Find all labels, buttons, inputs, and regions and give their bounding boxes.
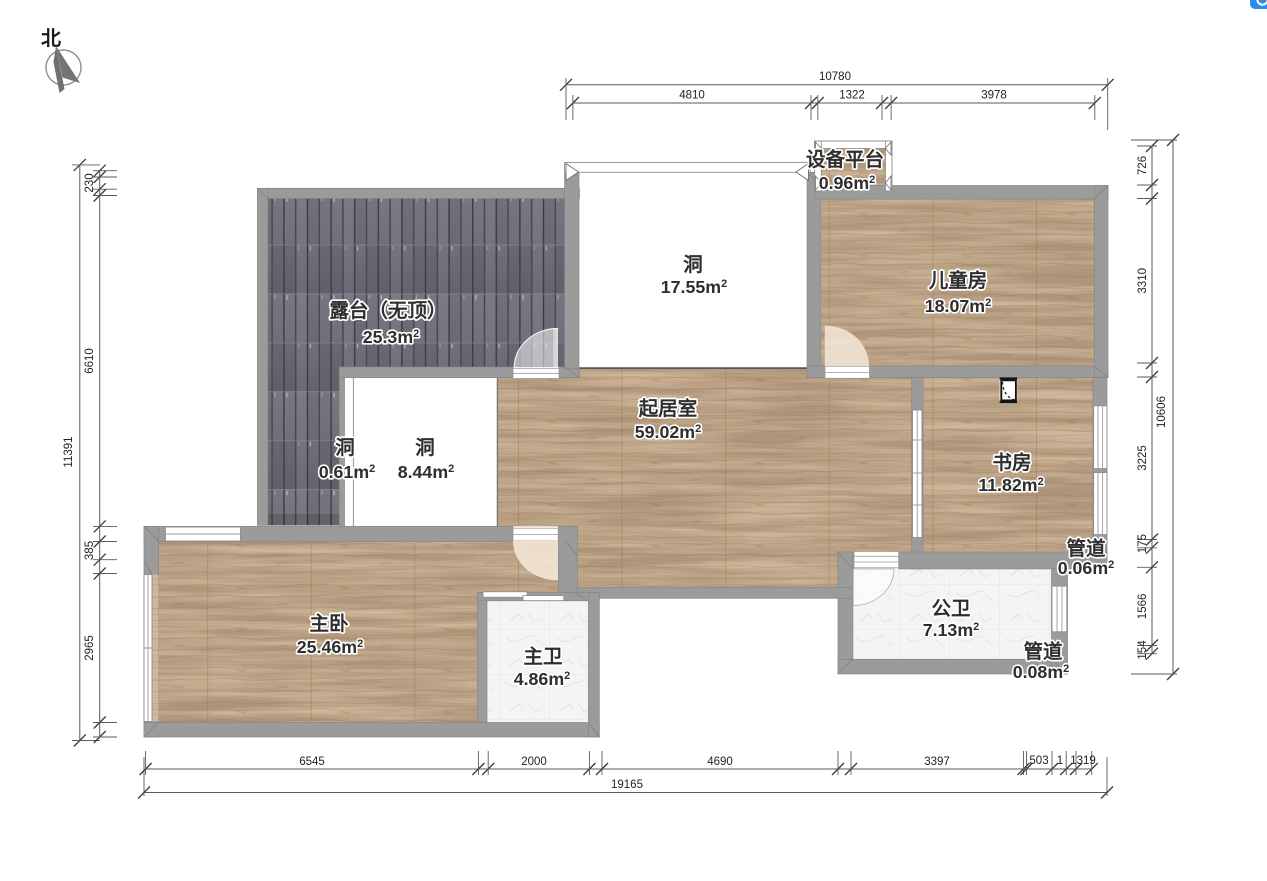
svg-text:1322: 1322 — [839, 90, 865, 102]
svg-text:3225: 3225 — [1137, 445, 1149, 471]
svg-text:11.82m2: 11.82m2 — [978, 475, 1043, 495]
svg-text:59.02m2: 59.02m2 — [635, 422, 701, 442]
svg-text:1: 1 — [1057, 755, 1063, 767]
svg-text:洞: 洞 — [683, 254, 703, 276]
svg-text:154: 154 — [1137, 640, 1149, 660]
svg-text:洞: 洞 — [415, 437, 435, 459]
svg-text:0.08m2: 0.08m2 — [1013, 662, 1070, 682]
svg-text:管道: 管道 — [1066, 537, 1106, 560]
svg-text:洞: 洞 — [335, 437, 355, 459]
svg-text:11391: 11391 — [63, 436, 75, 467]
svg-text:1566: 1566 — [1137, 594, 1149, 620]
svg-text:385: 385 — [84, 541, 96, 560]
svg-text:18.07m2: 18.07m2 — [925, 296, 991, 316]
svg-text:设备平台: 设备平台 — [806, 148, 884, 171]
svg-text:175: 175 — [1137, 534, 1149, 553]
svg-text:书房: 书房 — [992, 451, 1031, 474]
svg-text:10780: 10780 — [819, 71, 851, 83]
svg-text:儿童房: 儿童房 — [928, 269, 988, 292]
svg-text:0.96m2: 0.96m2 — [819, 173, 876, 193]
svg-text:25.46m2: 25.46m2 — [297, 637, 363, 657]
svg-text:公卫: 公卫 — [931, 598, 970, 620]
svg-text:管道: 管道 — [1023, 640, 1063, 663]
svg-text:0.61m2: 0.61m2 — [319, 462, 376, 482]
svg-text:4810: 4810 — [679, 90, 705, 102]
svg-text:8.44m2: 8.44m2 — [398, 462, 455, 482]
svg-text:3310: 3310 — [1137, 268, 1149, 294]
svg-text:7.13m2: 7.13m2 — [923, 620, 980, 640]
svg-text:17.55m2: 17.55m2 — [661, 277, 727, 297]
svg-text:4690: 4690 — [707, 756, 733, 768]
svg-text:露台（无顶）: 露台（无顶） — [329, 299, 446, 322]
svg-text:10606: 10606 — [1156, 396, 1168, 428]
svg-text:230: 230 — [84, 173, 96, 192]
svg-text:主卧: 主卧 — [309, 612, 349, 635]
svg-text:2965: 2965 — [84, 635, 96, 661]
svg-text:25.3m2: 25.3m2 — [363, 327, 420, 347]
svg-text:726: 726 — [1137, 156, 1149, 175]
svg-text:6545: 6545 — [299, 756, 325, 768]
svg-text:4.86m2: 4.86m2 — [514, 669, 571, 689]
svg-text:3397: 3397 — [924, 756, 950, 768]
svg-text:3978: 3978 — [981, 90, 1007, 102]
svg-text:19165: 19165 — [611, 779, 643, 791]
svg-text:6610: 6610 — [84, 348, 96, 374]
svg-text:主卫: 主卫 — [523, 645, 562, 668]
svg-text:1319: 1319 — [1070, 755, 1096, 767]
svg-text:0.06m2: 0.06m2 — [1058, 558, 1115, 578]
svg-text:北: 北 — [41, 27, 61, 50]
svg-text:起居室: 起居室 — [638, 397, 698, 420]
svg-text:503: 503 — [1029, 755, 1048, 767]
svg-text:2000: 2000 — [521, 756, 547, 768]
